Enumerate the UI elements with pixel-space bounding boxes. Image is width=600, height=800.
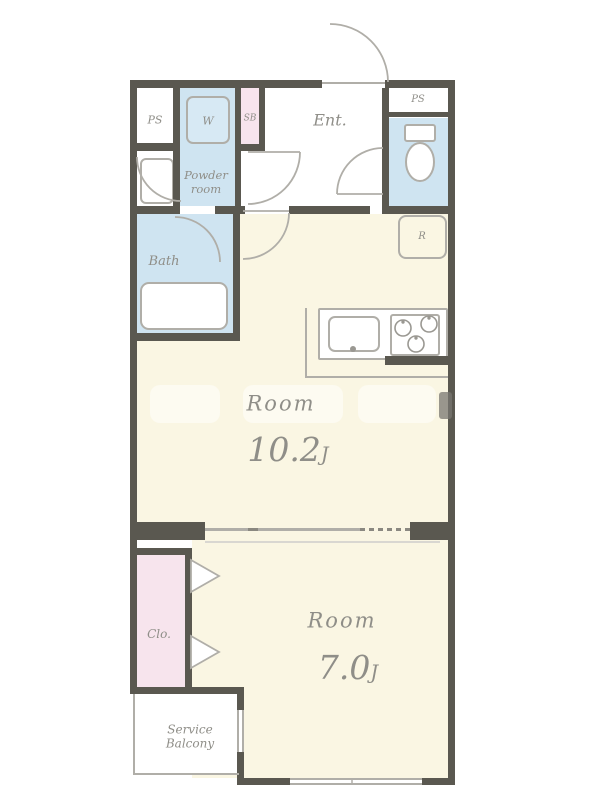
entrance-label: Ent.: [313, 110, 347, 129]
sliding-partition: [205, 530, 440, 543]
burner-1-knob: [401, 320, 404, 323]
watermark-blob-3: [358, 385, 436, 423]
entrance-door-arc: [330, 24, 388, 82]
shoe-box-label: SB: [244, 114, 257, 125]
closet-label: Clo.: [147, 627, 171, 641]
hall-door-arc: [248, 152, 300, 204]
main-room-door-arc: [243, 213, 289, 259]
refrigerator-label: R: [418, 231, 426, 243]
main-room-size-unit: J: [321, 443, 329, 466]
bedroom-size-unit: J: [370, 661, 378, 684]
main-room-size-value: 10.2: [247, 430, 320, 469]
powder-room-label-line2: room: [191, 182, 221, 196]
ps-left-label: PS: [148, 113, 163, 126]
main-room-name-label: Room: [246, 391, 315, 416]
folding-door-chevron-bottom: [191, 636, 219, 668]
folding-door-chevron-top: [191, 560, 219, 592]
main-room-size-label: 10.2J: [247, 430, 328, 470]
closet-folding-doors: [191, 560, 219, 668]
bath-door-arc: [175, 217, 220, 262]
washer-label: W: [202, 114, 213, 127]
powder-room-label-line1: Powder: [184, 168, 228, 182]
service-balcony-label-line1: Service: [167, 723, 213, 737]
bedroom-size-value: 7.0: [318, 648, 370, 687]
toilet-door-arc: [337, 148, 383, 194]
washbasin-door-arc: [137, 157, 181, 201]
stove-burners: [395, 316, 437, 352]
bath-label: Bath: [149, 254, 180, 270]
powder-room-label: Powder room: [184, 169, 228, 197]
service-balcony-label-line2: Balcony: [166, 737, 214, 751]
burner-2-knob: [427, 316, 430, 319]
watermark-blob-wall: [439, 392, 452, 419]
toilet-bowl: [406, 143, 434, 181]
bedroom-size-label: 7.0J: [318, 648, 378, 688]
service-balcony-label: Service Balcony: [166, 723, 214, 752]
floor-plan: PS W SB Ent. PS Powder room Bath R Room …: [0, 0, 600, 800]
burner-3-knob: [414, 336, 417, 339]
bedroom-name-label: Room: [307, 608, 376, 633]
sink-tap: [350, 346, 356, 352]
ps-right-label: PS: [411, 94, 425, 106]
watermark-blob-1: [150, 385, 220, 423]
